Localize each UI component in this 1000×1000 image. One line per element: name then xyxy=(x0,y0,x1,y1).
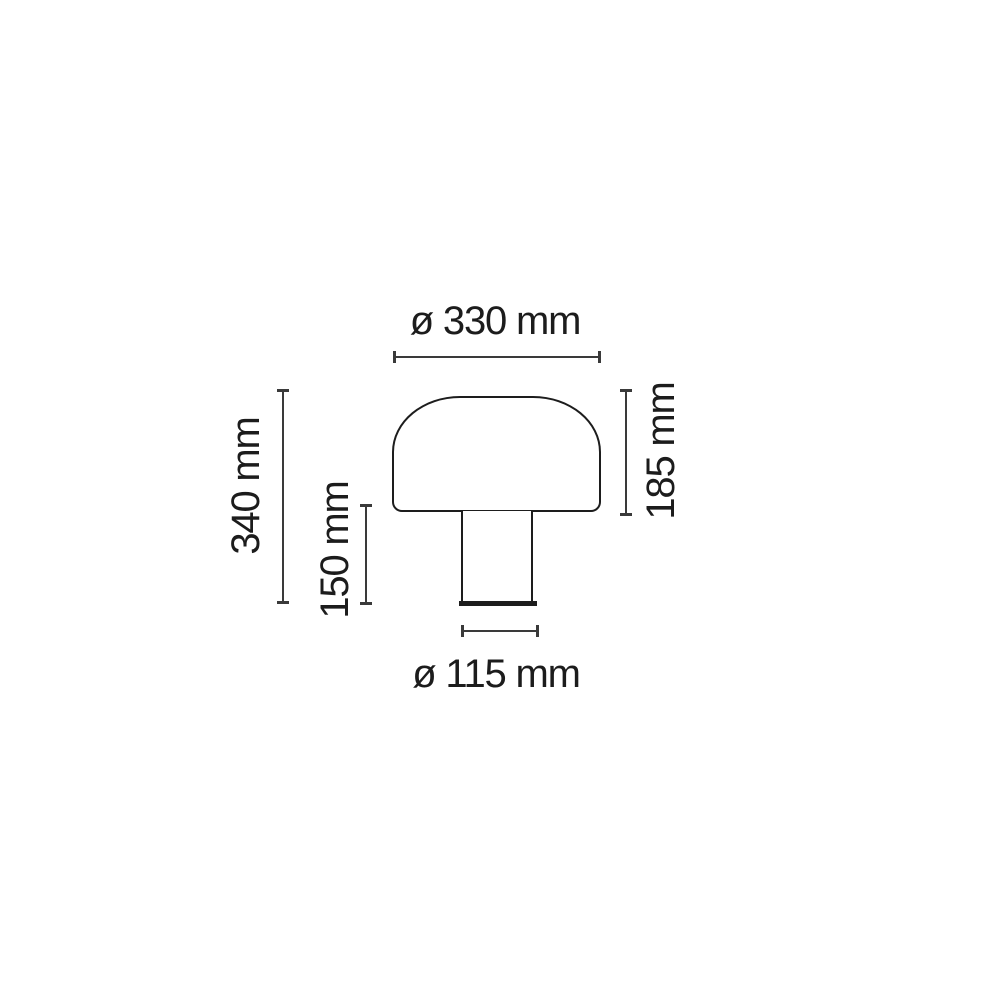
dim-line-shade-diameter xyxy=(394,356,600,358)
lamp-stem-outline xyxy=(461,511,533,602)
lamp-base-plate xyxy=(459,601,537,606)
dim-label-shade-diameter: ø 330 mm xyxy=(410,301,580,341)
dim-line-shade-height xyxy=(625,390,627,515)
dim-label-total-height: 340 mm xyxy=(226,417,266,554)
lamp-dimension-diagram: ø 330 mm 340 mm 150 mm 185 mm ø 115 mm xyxy=(0,0,1000,1000)
dim-line-total-height xyxy=(282,390,284,603)
dim-label-shade-height: 185 mm xyxy=(641,382,681,519)
dim-label-base-diameter: ø 115 mm xyxy=(412,654,579,694)
dim-line-base-diameter xyxy=(462,630,538,632)
dim-label-stem-height: 150 mm xyxy=(315,481,355,618)
dim-line-stem-height xyxy=(365,505,367,604)
lamp-shade-outline xyxy=(392,396,601,512)
